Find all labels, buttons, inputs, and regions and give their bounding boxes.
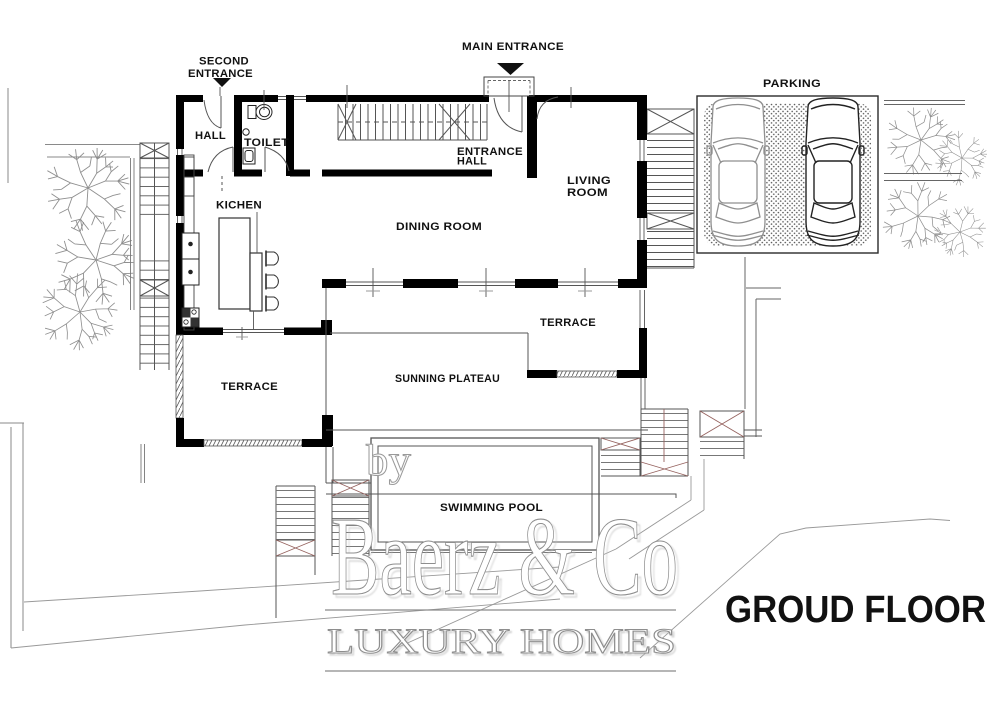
svg-text:TERRACE: TERRACE [540, 317, 596, 329]
svg-text:by: by [366, 436, 411, 485]
svg-text:TOILET: TOILET [244, 137, 289, 149]
svg-text:HALL: HALL [457, 156, 487, 168]
svg-text:LUXURY HOMES: LUXURY HOMES [327, 621, 676, 661]
svg-text:DINING ROOM: DINING ROOM [396, 221, 482, 233]
svg-text:SECOND: SECOND [199, 56, 249, 68]
svg-text:LIVING: LIVING [567, 175, 611, 187]
svg-text:SWIMMING POOL: SWIMMING POOL [440, 502, 543, 514]
svg-text:HALL: HALL [195, 130, 226, 142]
svg-text:ENTRANCE: ENTRANCE [188, 68, 253, 80]
svg-text:KICHEN: KICHEN [216, 200, 262, 212]
svg-text:TERRACE: TERRACE [221, 381, 278, 393]
svg-text:ROOM: ROOM [567, 187, 608, 199]
svg-text:GROUD FLOOR: GROUD FLOOR [725, 589, 986, 631]
svg-text:MAIN ENTRANCE: MAIN ENTRANCE [462, 41, 564, 53]
svg-text:SUNNING PLATEAU: SUNNING PLATEAU [395, 373, 500, 385]
svg-text:PARKING: PARKING [763, 78, 821, 90]
